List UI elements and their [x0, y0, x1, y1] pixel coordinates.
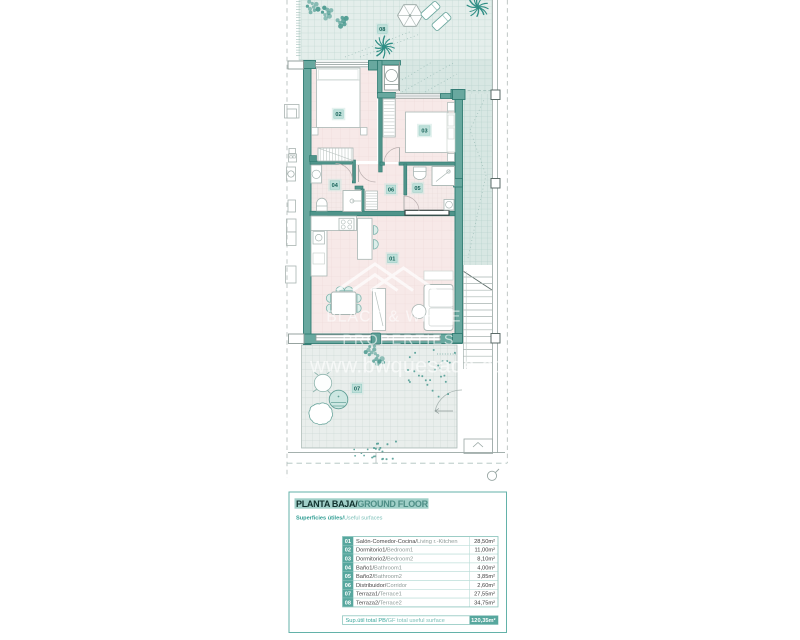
svg-text:02: 02	[335, 112, 341, 118]
svg-text:04: 04	[345, 565, 352, 571]
svg-text:27,55m²: 27,55m²	[474, 592, 495, 598]
svg-text:Salón-Comedor-Cocina/Living r.: Salón-Comedor-Cocina/Living r.-Kitchen	[356, 539, 457, 545]
svg-text:BLACK & WHITE: BLACK & WHITE	[326, 309, 461, 326]
svg-text:04: 04	[332, 183, 339, 189]
svg-text:08: 08	[345, 601, 351, 607]
svg-text:06: 06	[388, 187, 394, 193]
svg-text:34,75m²: 34,75m²	[474, 601, 495, 607]
svg-text:05: 05	[414, 186, 420, 192]
svg-text:28,50m²: 28,50m²	[474, 539, 495, 545]
svg-text:01: 01	[345, 539, 351, 545]
svg-text:Terraza1/Terrace1: Terraza1/Terrace1	[356, 592, 402, 598]
svg-text:02: 02	[345, 548, 351, 554]
svg-text:03: 03	[421, 129, 427, 135]
svg-text:4,00m²: 4,00m²	[477, 565, 495, 571]
svg-text:01: 01	[389, 256, 395, 262]
svg-text:PROPERTIES: PROPERTIES	[342, 333, 455, 349]
svg-text:07: 07	[345, 592, 351, 598]
svg-text:Sup.útil total PB/GF total use: Sup.útil total PB/GF total useful surfac…	[346, 618, 445, 624]
svg-text:Dormitorio1/Bedroom1: Dormitorio1/Bedroom1	[356, 548, 413, 554]
svg-text:3,85m²: 3,85m²	[477, 574, 495, 580]
svg-text:Distribuidor/Corridor: Distribuidor/Corridor	[356, 583, 407, 589]
svg-text:www.bwquesada.co: www.bwquesada.co	[309, 354, 505, 378]
svg-text:08: 08	[379, 27, 385, 33]
svg-text:Superficies útiles/Useful surf: Superficies útiles/Useful surfaces	[296, 516, 383, 522]
svg-text:07: 07	[354, 386, 360, 392]
svg-text:05: 05	[345, 574, 351, 580]
svg-text:Terraza2/Terrace2: Terraza2/Terrace2	[356, 601, 402, 607]
svg-text:PLANTA BAJA/GROUND FLOOR: PLANTA BAJA/GROUND FLOOR	[296, 499, 429, 509]
svg-text:120,35m²: 120,35m²	[471, 617, 495, 624]
svg-text:Baño2/Bathroom2: Baño2/Bathroom2	[356, 574, 402, 580]
svg-text:06: 06	[345, 583, 351, 589]
svg-text:2,60m²: 2,60m²	[477, 583, 495, 589]
svg-text:11,00m²: 11,00m²	[475, 548, 496, 554]
svg-text:8,10m²: 8,10m²	[477, 557, 495, 563]
svg-text:03: 03	[345, 557, 351, 563]
svg-text:Dormitorio2/Bedroom2: Dormitorio2/Bedroom2	[356, 557, 413, 563]
svg-text:Baño1/Bathroom1: Baño1/Bathroom1	[356, 565, 402, 571]
